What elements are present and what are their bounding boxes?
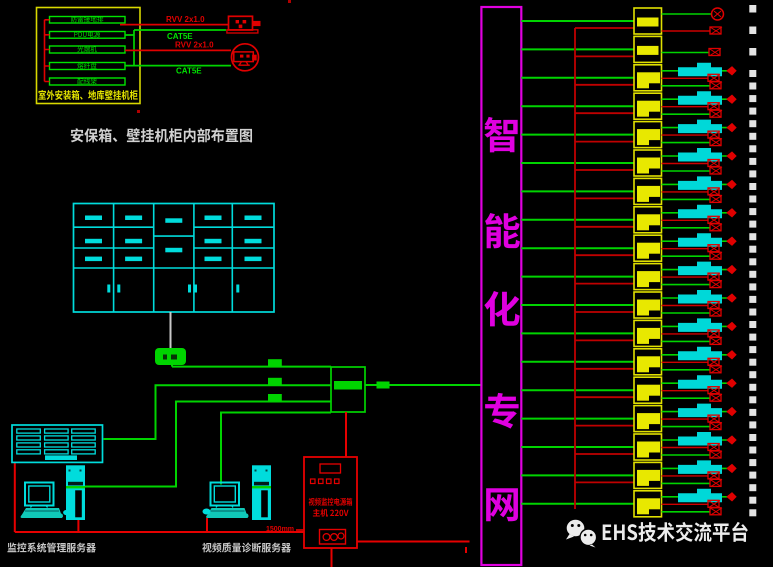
- svg-text:1500mm: 1500mm: [266, 526, 294, 533]
- svg-text:RVV 2x1.0: RVV 2x1.0: [166, 15, 205, 24]
- svg-text:RVV 2x1.0: RVV 2x1.0: [175, 41, 214, 50]
- svg-text:CAT5E: CAT5E: [176, 67, 202, 76]
